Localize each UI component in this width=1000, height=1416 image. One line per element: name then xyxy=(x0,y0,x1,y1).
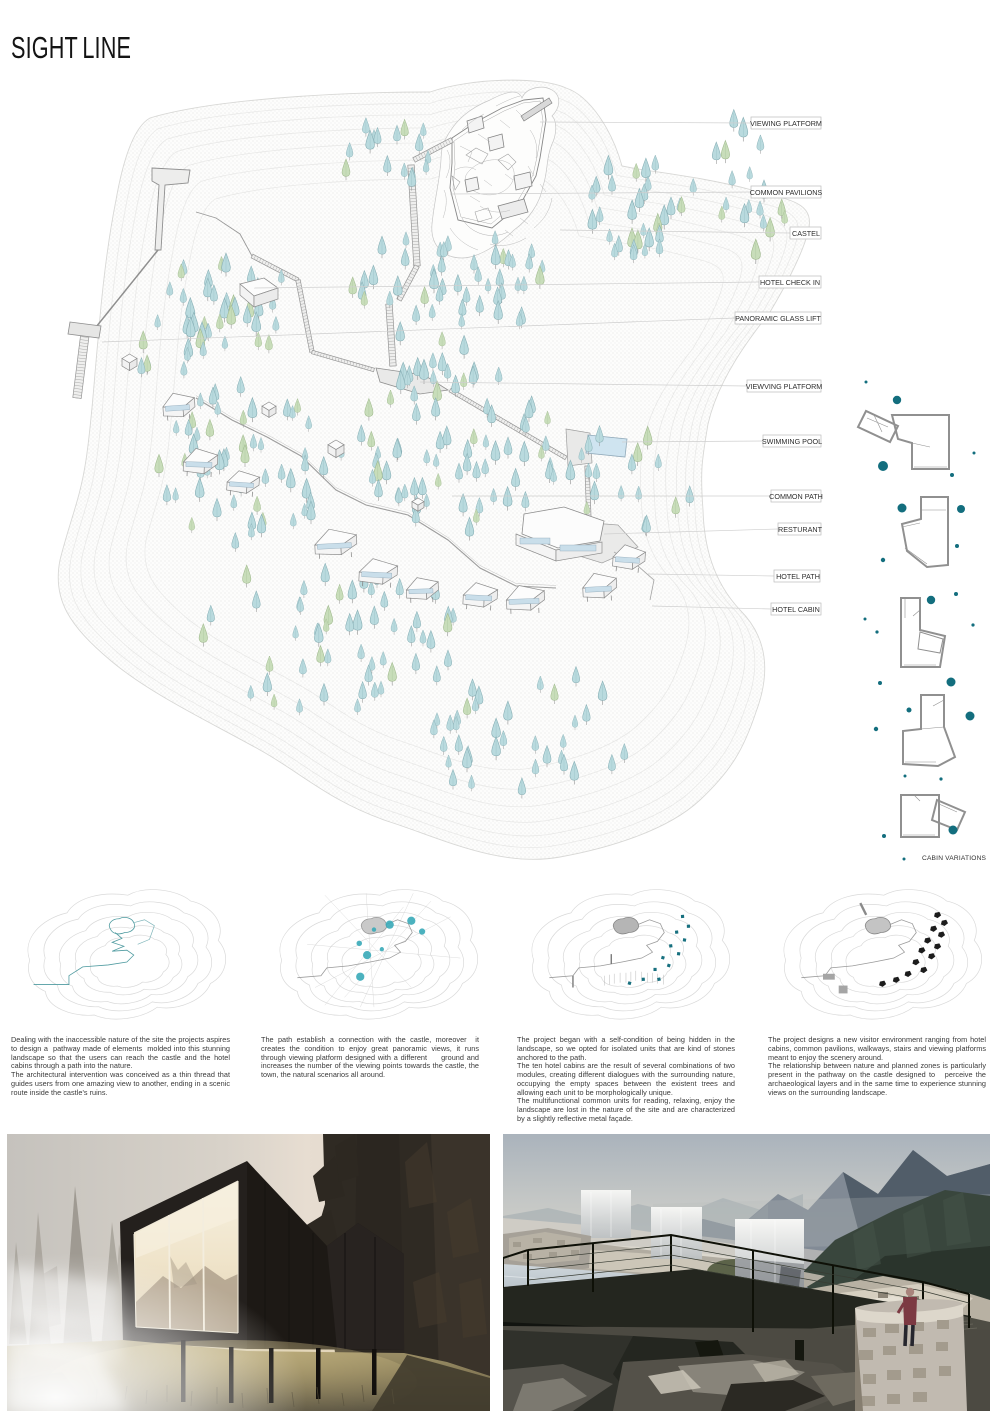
svg-text:HOTEL CHECK IN: HOTEL CHECK IN xyxy=(760,278,820,287)
svg-text:COMMON PATH: COMMON PATH xyxy=(769,492,823,501)
svg-text:VIEWING PLATFORM: VIEWING PLATFORM xyxy=(750,119,822,128)
svg-text:HOTEL CABIN: HOTEL CABIN xyxy=(772,605,820,614)
svg-text:HOTEL PATH: HOTEL PATH xyxy=(776,572,820,581)
svg-text:CASTEL: CASTEL xyxy=(792,229,820,238)
svg-text:COMMON PAVILIONS: COMMON PAVILIONS xyxy=(750,188,823,197)
svg-text:PANORAMIC GLASS LIFT: PANORAMIC GLASS LIFT xyxy=(735,314,821,323)
svg-text:RESTURANT: RESTURANT xyxy=(778,525,823,534)
svg-text:VIEWVING PLATFORM: VIEWVING PLATFORM xyxy=(746,382,823,391)
svg-text:CABIN VARIATIONS: CABIN VARIATIONS xyxy=(922,855,987,862)
svg-text:SWIMMING POOL: SWIMMING POOL xyxy=(762,437,822,446)
